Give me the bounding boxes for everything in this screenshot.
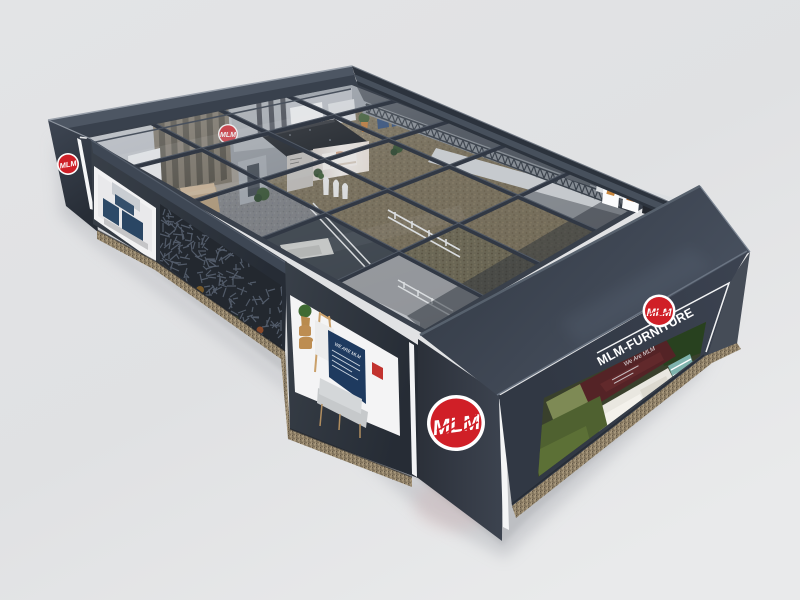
svg-text:MLM: MLM bbox=[646, 307, 672, 319]
